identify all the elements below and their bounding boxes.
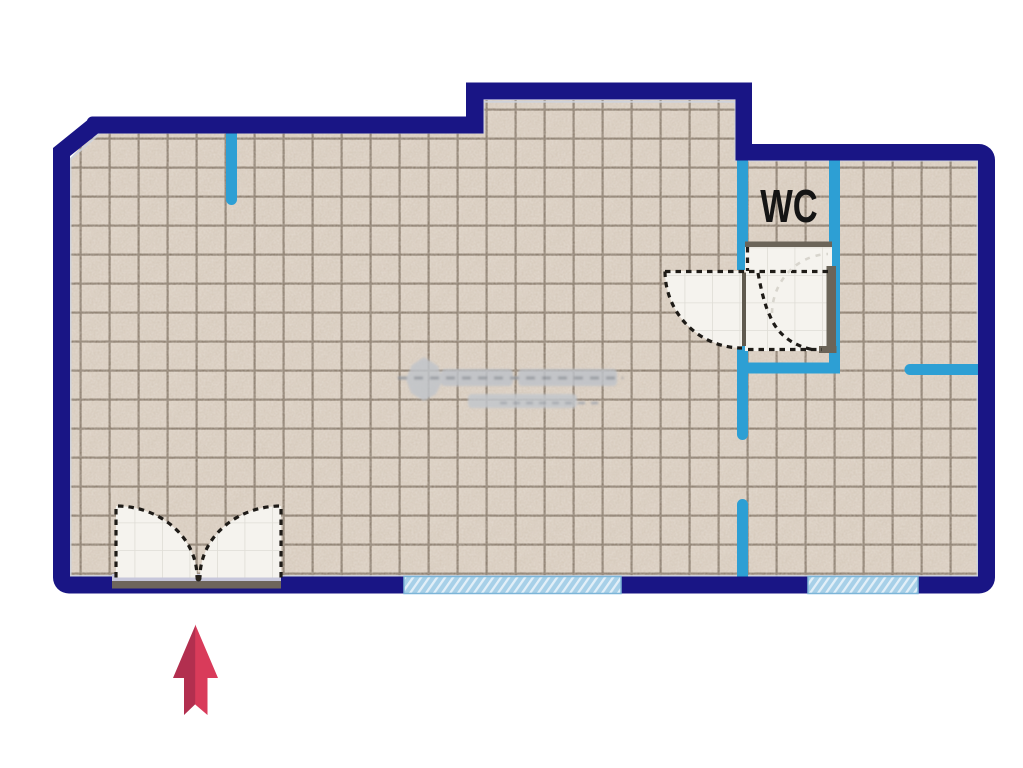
svg-text:WC: WC bbox=[760, 180, 817, 232]
